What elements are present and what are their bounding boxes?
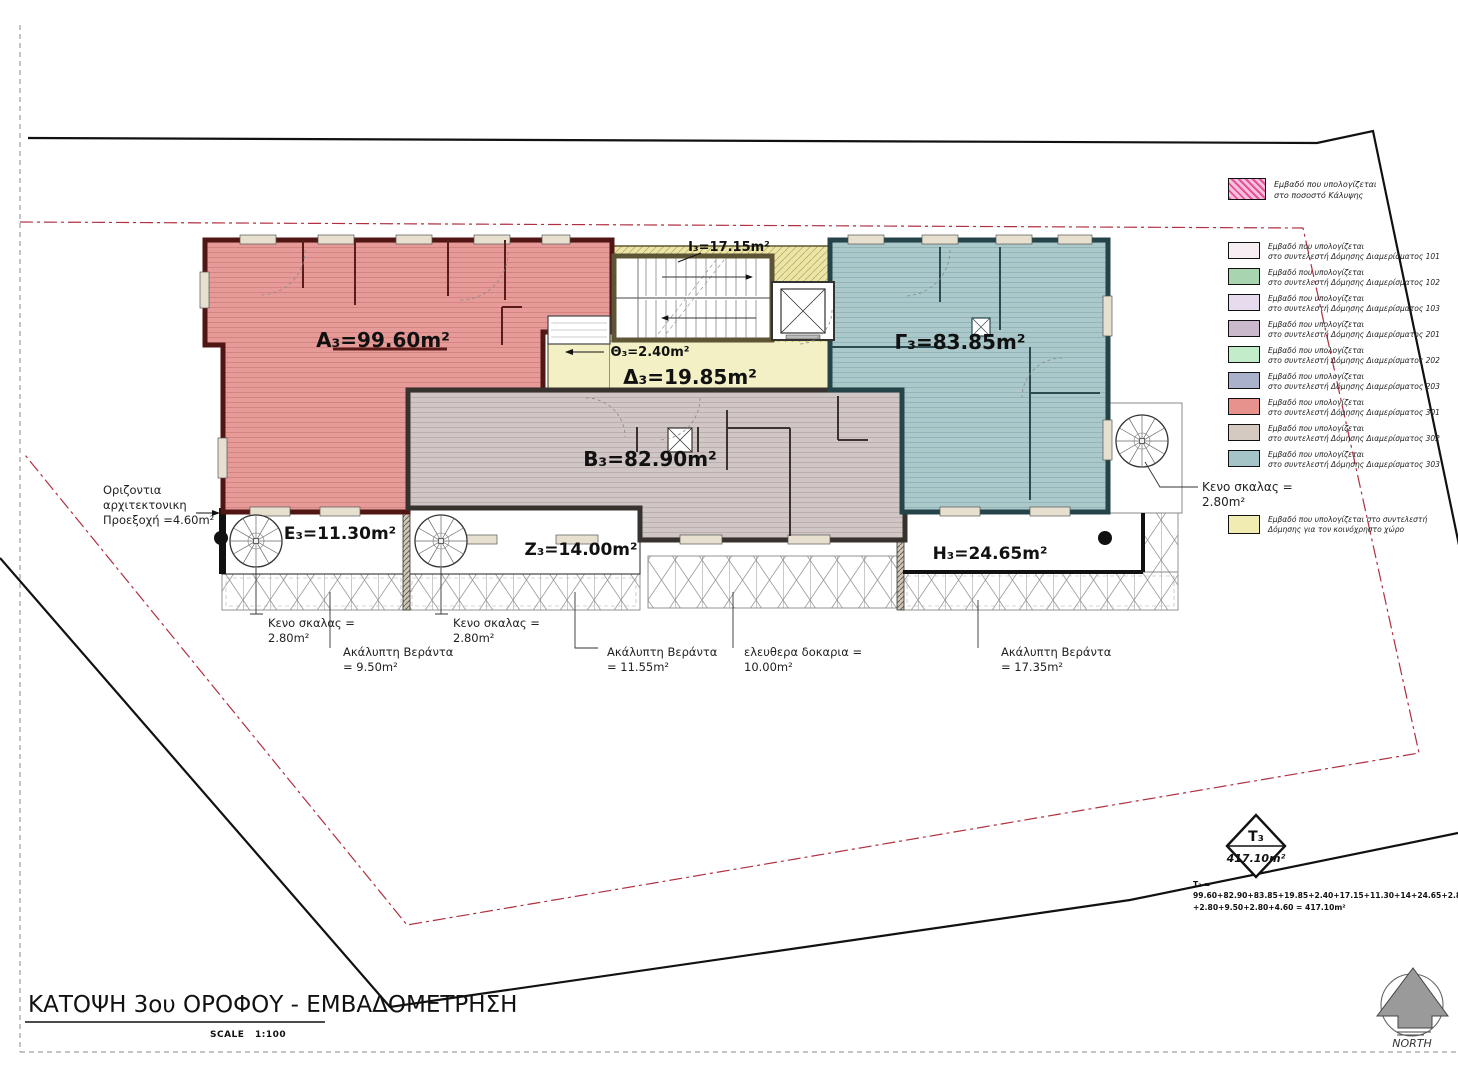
total-sum: T₃ = 99.60+82.90+83.85+19.85+2.40+17.15+… — [1193, 880, 1458, 912]
title-block: ΚΑΤΟΨΗ 3ου ΟΡΟΦΟΥ - ΕΜΒΑΔΟΜΕΤΡΗΣΗ SCALE … — [25, 992, 517, 1040]
legend-101-line1: Εμβαδό που υπολογίζεται — [1268, 242, 1440, 252]
legend-303-line2: στο συντελεστή Δόμησης Διαμερίσματος 303 — [1268, 460, 1440, 470]
legend-swatch-301 — [1228, 398, 1260, 415]
sum-line1: 99.60+82.90+83.85+19.85+2.40+17.15+11.30… — [1193, 891, 1458, 900]
legend-common-line1: Εμβαδό που υπολογίζεται στο συντελεστή — [1268, 515, 1427, 525]
page-title: ΚΑΤΟΨΗ 3ου ΟΡΟΦΟΥ - ΕΜΒΑΔΟΜΕΤΡΗΣΗ — [28, 992, 517, 1018]
legend-item-103: Εμβαδό που υπολογίζεται στο συντελεστή Δ… — [1228, 294, 1440, 314]
ann-projection-2: αρχιτεκτονικη — [103, 498, 187, 512]
legend-item-203: Εμβαδό που υπολογίζεται στο συντελεστή Δ… — [1228, 372, 1440, 392]
label-g3: Γ₃=83.85m² — [894, 330, 1025, 354]
ann-void-e-1: Κενο σκαλας = — [268, 616, 355, 630]
total-value: 417.10m² — [1226, 852, 1286, 865]
legend-swatch-101 — [1228, 242, 1260, 259]
ann-veranda-h-2: = 17.35m² — [1001, 660, 1063, 674]
legend-item-303: Εμβαδό που υπολογίζεται στο συντελεστή Δ… — [1228, 450, 1440, 470]
legend: Εμβαδό που υπολογίζεται στο ποσοστό Κάλυ… — [1228, 178, 1458, 578]
ann-veranda-z-1: Ακάλυπτη Βεράντα — [607, 645, 718, 659]
legend-201-line1: Εμβαδό που υπολογίζεται — [1268, 320, 1440, 330]
label-e3: E₃=11.30m² — [284, 524, 396, 544]
label-h3: H₃=24.65m² — [933, 544, 1048, 564]
legend-item-101: Εμβαδό που υπολογίζεται στο συντελεστή Δ… — [1228, 242, 1440, 262]
label-th3: Θ₃=2.40m² — [611, 345, 690, 360]
legend-swatch-102 — [1228, 268, 1260, 285]
scale-value: 1:100 — [255, 1030, 286, 1040]
label-d3: Δ₃=19.85m² — [623, 365, 757, 389]
legend-item-302: Εμβαδό που υπολογίζεται στο συντελεστή Δ… — [1228, 424, 1440, 444]
label-a3: A₃=99.60m² — [316, 328, 450, 352]
ann-veranda-h-1: Ακάλυπτη Βεράντα — [1001, 645, 1112, 659]
legend-swatch-303 — [1228, 450, 1260, 467]
scale-word: SCALE — [210, 1030, 244, 1040]
total-mark: T₃ — [1248, 829, 1264, 845]
ann-veranda-z-2: = 11.55m² — [607, 660, 669, 674]
legend-item-202: Εμβαδό που υπολογίζεται στο συντελεστή Δ… — [1228, 346, 1440, 366]
ann-void-e-2: 2.80m² — [268, 631, 309, 645]
elevator — [772, 282, 834, 340]
legend-102-line1: Εμβαδό που υπολογίζεται — [1268, 268, 1440, 278]
legend-item-102: Εμβαδό που υπολογίζεται στο συντελεστή Δ… — [1228, 268, 1440, 288]
ann-veranda-e-2: = 9.50m² — [343, 660, 398, 674]
drawing-page: A₃=99.60m² B₃=82.90m² Γ₃=83.85m² Δ₃=19.8… — [0, 0, 1458, 1080]
legend-item-coverage: Εμβαδό που υπολογίζεται στο ποσοστό Κάλυ… — [1228, 178, 1377, 202]
column-dot-left — [214, 531, 228, 545]
legend-text-coverage: Εμβαδό που υπολογίζεται στο ποσοστό Κάλυ… — [1274, 178, 1377, 202]
legend-swatch-103 — [1228, 294, 1260, 311]
label-z3: Z₃=14.00m² — [525, 540, 638, 560]
legend-202-line1: Εμβαδό που υπολογίζεται — [1268, 346, 1440, 356]
ann-void-z-2: 2.80m² — [453, 631, 494, 645]
legend-301-line2: στο συντελεστή Δόμησης Διαμερίσματος 301 — [1268, 408, 1440, 418]
total-diamond: T₃ 417.10m² — [1226, 815, 1286, 877]
legend-101-line2: στο συντελεστή Δόμησης Διαμερίσματος 101 — [1268, 252, 1440, 262]
legend-swatch-202 — [1228, 346, 1260, 363]
legend-coverage-line2: στο ποσοστό Κάλυψης — [1274, 191, 1377, 202]
legend-103-line1: Εμβαδό που υπολογίζεται — [1268, 294, 1440, 304]
legend-swatch-302 — [1228, 424, 1260, 441]
ann-beams-2: 10.00m² — [744, 660, 793, 674]
legend-302-line1: Εμβαδό που υπολογίζεται — [1268, 424, 1440, 434]
stairwell — [614, 256, 772, 340]
north-arrow: NORTH — [1377, 968, 1448, 1050]
ann-projection-1: Οριζοντια — [103, 483, 162, 497]
legend-202-line2: στο συντελεστή Δόμησης Διαμερίσματος 202 — [1268, 356, 1440, 366]
legend-swatch-203 — [1228, 372, 1260, 389]
legend-item-201: Εμβαδό που υπολογίζεται στο συντελεστή Δ… — [1228, 320, 1440, 340]
ann-beams-1: ελευθερα δοκαρια = — [744, 645, 862, 659]
legend-coverage-line1: Εμβαδό που υπολογίζεται — [1274, 180, 1377, 191]
legend-203-line1: Εμβαδό που υπολογίζεται — [1268, 372, 1440, 382]
sum-line2: +2.80+9.50+2.80+4.60 = 417.10m² — [1193, 903, 1346, 912]
legend-303-line1: Εμβαδό που υπολογίζεται — [1268, 450, 1440, 460]
legend-common-line2: Δόμησης για τον κοινόχρηστο χώρο — [1268, 525, 1427, 535]
column-dot-right — [1098, 531, 1112, 545]
ann-void-z-1: Κενο σκαλας = — [453, 616, 540, 630]
legend-swatch-common — [1228, 515, 1260, 534]
legend-item-301: Εμβαδό που υπολογίζεται στο συντελεστή Δ… — [1228, 398, 1440, 418]
legend-102-line2: στο συντελεστή Δόμησης Διαμερίσματος 102 — [1268, 278, 1440, 288]
ann-projection-3: Προεξοχή =4.60m² — [103, 513, 214, 527]
legend-swatch-coverage — [1228, 178, 1266, 200]
legend-swatch-201 — [1228, 320, 1260, 337]
legend-301-line1: Εμβαδό που υπολογίζεται — [1268, 398, 1440, 408]
legend-203-line2: στο συντελεστή Δόμησης Διαμερίσματος 203 — [1268, 382, 1440, 392]
label-b3: B₃=82.90m² — [583, 447, 717, 471]
legend-103-line2: στο συντελεστή Δόμησης Διαμερίσματος 103 — [1268, 304, 1440, 314]
north-label: NORTH — [1392, 1037, 1432, 1050]
legend-201-line2: στο συντελεστή Δόμησης Διαμερίσματος 201 — [1268, 330, 1440, 340]
legend-item-common: Εμβαδό που υπολογίζεται στο συντελεστή Δ… — [1228, 515, 1427, 535]
sum-head: T₃ = — [1193, 880, 1211, 889]
legend-302-line2: στο συντελεστή Δόμησης Διαμερίσματος 302 — [1268, 434, 1440, 444]
ann-veranda-e-1: Ακάλυπτη Βεράντα — [343, 645, 454, 659]
